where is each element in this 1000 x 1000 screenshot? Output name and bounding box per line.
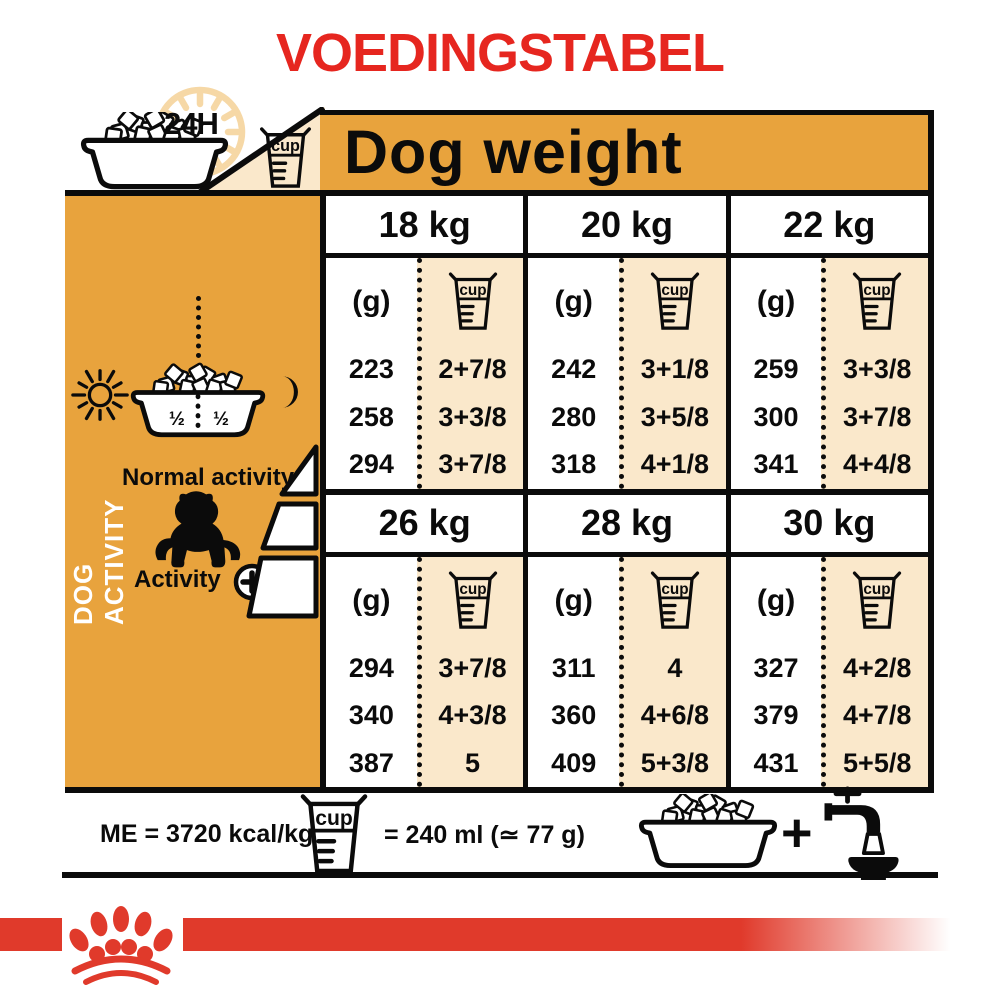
- grams-value: 294: [349, 653, 394, 684]
- weight-header-20kg: 20 kg: [523, 196, 725, 253]
- grams-subcolumn: (g)242280318: [528, 258, 619, 489]
- grams-value: 300: [754, 402, 799, 433]
- weight-column-20kg: (g)242280318 cup 3+1/83+5/84+1/8: [523, 258, 725, 489]
- cup-icon-holder: cup: [296, 794, 372, 876]
- cup-icon-holder: cup: [648, 571, 702, 631]
- cup-subcolumn: cup 4+2/84+7/85+5/8: [821, 557, 928, 788]
- grams-subcolumn: (g)311360409: [528, 557, 619, 788]
- bulldog-icon: [146, 488, 248, 572]
- cup-value: 4+2/8: [843, 653, 911, 684]
- cup-value: 3+7/8: [843, 402, 911, 433]
- half-left-label: ½: [169, 409, 185, 430]
- svg-text:cup: cup: [661, 282, 688, 299]
- cup-icon: cup: [257, 127, 314, 190]
- royal-canin-crown-logo: [55, 896, 187, 994]
- cup-value: 3+7/8: [438, 449, 506, 480]
- activity-steps-icon: [246, 444, 320, 622]
- half-right-label: ½: [213, 409, 229, 430]
- moon-icon: [266, 370, 300, 414]
- cup-value: 5+5/8: [843, 748, 911, 779]
- cup-value: 4+1/8: [641, 449, 709, 480]
- grams-header: (g): [555, 285, 593, 319]
- brand-band-right: [183, 918, 958, 951]
- svg-text:cup: cup: [459, 580, 486, 597]
- half-portions-bowl-icon: ½ ½: [126, 352, 270, 456]
- kibble-bowl-icon: [634, 794, 782, 874]
- royal-canin-crown-logo: [55, 896, 187, 994]
- weight-header-22kg: 22 kg: [726, 196, 928, 253]
- cup-value: 3+7/8: [438, 653, 506, 684]
- grams-subcolumn: (g)327379431: [731, 557, 822, 788]
- dotted-divider: [196, 296, 201, 358]
- cup-icon: cup: [296, 794, 372, 876]
- grams-value: 431: [754, 748, 799, 779]
- grams-value: 318: [551, 449, 596, 480]
- cup-icon: cup: [648, 272, 702, 332]
- cup-equivalence-label: = 240 ml (≃ 77 g): [384, 820, 585, 850]
- grams-value: 327: [754, 653, 799, 684]
- cup-icon-holder: cup: [257, 127, 314, 190]
- grams-value: 409: [551, 748, 596, 779]
- cup-icon: cup: [850, 571, 904, 631]
- cup-value: 2+7/8: [438, 354, 506, 385]
- grams-value: 280: [551, 402, 596, 433]
- cup-value: 4+7/8: [843, 700, 911, 731]
- cup-value: 3+3/8: [438, 402, 506, 433]
- cup-icon-holder: cup: [648, 272, 702, 332]
- cup-icon: cup: [648, 571, 702, 631]
- plus-sign: +: [781, 802, 813, 864]
- weight-header-26kg: 26 kg: [326, 495, 523, 552]
- cup-value: 5: [465, 748, 480, 779]
- grams-header: (g): [352, 285, 390, 319]
- svg-text:cup: cup: [864, 580, 891, 597]
- cup-icon-holder: cup: [850, 571, 904, 631]
- sun-icon: [70, 364, 132, 426]
- water-tap-icon: [816, 786, 904, 880]
- metabolizable-energy-label: ME = 3720 kcal/kg: [100, 820, 313, 849]
- kibble-bowl-icon: ½ ½: [126, 352, 270, 456]
- cup-value: 3+3/8: [843, 354, 911, 385]
- cup-icon: cup: [446, 571, 500, 631]
- weight-column-22kg: (g)259300341 cup 3+3/83+7/84+4/8: [726, 258, 928, 489]
- footer-divider: [62, 872, 938, 878]
- cup-subcolumn: cup 2+7/83+3/83+7/8: [417, 258, 524, 489]
- page-title: VOEDINGSTABEL: [0, 22, 1000, 84]
- cup-value: 4: [667, 653, 682, 684]
- grams-value: 360: [551, 700, 596, 731]
- weight-header-30kg: 30 kg: [726, 495, 928, 552]
- grams-value: 340: [349, 700, 394, 731]
- dog-weight-label: Dog weight: [320, 115, 928, 189]
- grams-header: (g): [757, 584, 795, 618]
- grams-header: (g): [352, 584, 390, 618]
- cup-subcolumn: cup 3+1/83+5/84+1/8: [619, 258, 726, 489]
- grams-value: 387: [349, 748, 394, 779]
- cup-icon-holder: cup: [446, 272, 500, 332]
- cup-subcolumn: cup 44+6/85+3/8: [619, 557, 726, 788]
- weight-header-18kg: 18 kg: [326, 196, 523, 253]
- cup-icon-holder: cup: [850, 272, 904, 332]
- svg-text:cup: cup: [459, 282, 486, 299]
- moon-icon: [266, 370, 300, 414]
- cup-value: 4+4/8: [843, 449, 911, 480]
- grams-header: (g): [555, 584, 593, 618]
- grams-header: (g): [757, 285, 795, 319]
- weight-block: 18 kg20 kg22 kg(g)223258294 cup 2+7/83+3…: [326, 196, 928, 489]
- svg-text:cup: cup: [315, 807, 353, 830]
- food-bowl-icon: [634, 794, 782, 874]
- weight-header-28kg: 28 kg: [523, 495, 725, 552]
- activity-steps-icon: [246, 444, 320, 622]
- cup-value: 5+3/8: [641, 748, 709, 779]
- weight-block: 26 kg28 kg30 kg(g)294340387 cup 3+7/84+3…: [326, 489, 928, 788]
- grams-value: 311: [552, 653, 596, 684]
- grams-value: 294: [349, 449, 394, 480]
- cup-icon: cup: [446, 272, 500, 332]
- grams-value: 258: [349, 402, 394, 433]
- brand-band-left: [0, 918, 62, 951]
- cup-value: 4+6/8: [641, 700, 709, 731]
- water-tap-icon: [816, 786, 904, 880]
- activity-plus-label: Activity: [134, 566, 221, 594]
- bulldog-silhouette: [146, 488, 248, 572]
- feeding-table: 18 kg20 kg22 kg(g)223258294 cup 2+7/83+3…: [320, 190, 934, 793]
- cup-icon-holder: cup: [446, 571, 500, 631]
- dog-activity-label: DOG ACTIVITY: [68, 450, 130, 625]
- sun-icon: [70, 364, 132, 426]
- weight-column-26kg: (g)294340387 cup 3+7/84+3/85: [326, 557, 523, 788]
- weight-column-30kg: (g)327379431 cup 4+2/84+7/85+5/8: [726, 557, 928, 788]
- grams-value: 379: [754, 700, 799, 731]
- dog-weight-band: Dog weight: [320, 110, 934, 191]
- svg-text:cup: cup: [661, 580, 688, 597]
- svg-text:cup: cup: [271, 137, 300, 155]
- grams-value: 341: [754, 449, 799, 480]
- grams-subcolumn: (g)294340387: [326, 557, 417, 788]
- grams-subcolumn: (g)259300341: [731, 258, 822, 489]
- cup-value: 3+5/8: [641, 402, 709, 433]
- cup-subcolumn: cup 3+7/84+3/85: [417, 557, 524, 788]
- grams-value: 259: [754, 354, 799, 385]
- cup-subcolumn: cup 3+3/83+7/84+4/8: [821, 258, 928, 489]
- cup-icon: cup: [850, 272, 904, 332]
- weight-column-28kg: (g)311360409 cup 44+6/85+3/8: [523, 557, 725, 788]
- grams-subcolumn: (g)223258294: [326, 258, 417, 489]
- weight-column-18kg: (g)223258294 cup 2+7/83+3/83+7/8: [326, 258, 523, 489]
- cup-value: 3+1/8: [641, 354, 709, 385]
- grams-value: 223: [349, 354, 394, 385]
- svg-text:cup: cup: [864, 282, 891, 299]
- cup-value: 4+3/8: [438, 700, 506, 731]
- grams-value: 242: [551, 354, 596, 385]
